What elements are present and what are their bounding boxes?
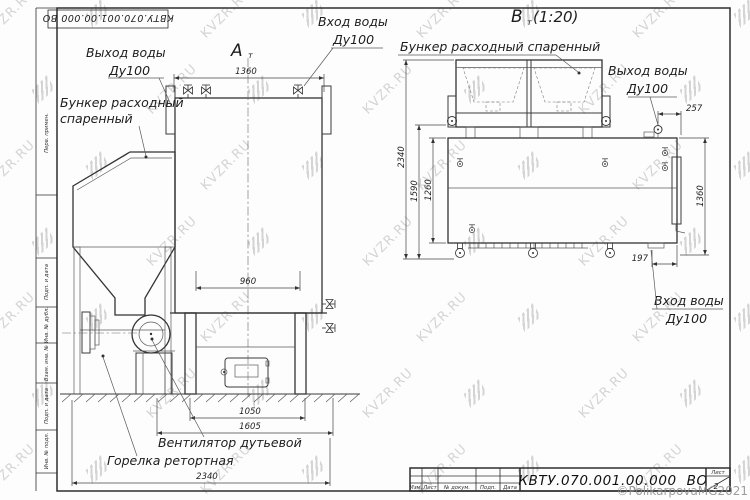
copyright-text: ©PolikarpovaMG2021 (617, 484, 748, 498)
callout-b-bunker: Бункер расходный спаренный (400, 39, 600, 54)
dim-b-197: 197 (632, 254, 649, 264)
callout-burner: Горелка ретортная (107, 453, 234, 468)
boiler-top-body (448, 126, 685, 258)
callout-a-water-in-line2: Ду100 (332, 32, 374, 47)
dim-a-960: 960 (240, 277, 256, 287)
frame-field-inv-podl: Инв. № подл. (44, 433, 50, 470)
view-a-label: А (230, 41, 243, 61)
ground-hatch (60, 394, 360, 402)
tb-col-izm: Изм. (410, 485, 422, 491)
callout-b-water-in-line1: Вход воды (654, 293, 724, 308)
tb-sheet-label: Лист (710, 470, 725, 476)
view-b-callouts: Бункер расходный спаренный Выход воды Ду… (398, 39, 724, 326)
drawing-sheet: KVZR.RUKVZR.RUKVZR.RUKVZR.RUKVZR.RUKVZR.… (0, 0, 750, 500)
callout-a-bunker-line2: спаренный (60, 111, 133, 126)
view-b-label: В (511, 7, 523, 27)
top-left-stamp: КВТУ.070.001.00.000 ВО (42, 10, 173, 28)
dim-a-1360: 1360 (235, 67, 257, 77)
tb-col-list: Лист (422, 485, 437, 491)
callout-b-water-in-line2: Ду100 (665, 311, 707, 326)
callout-fan: Вентилятор дутьевой (158, 435, 302, 450)
frame-field-perv-primen: Перв. примен. (44, 113, 50, 153)
frame-field-podp-data-2: Подп. и дата (44, 388, 50, 424)
view-b: В т (1:20) (397, 7, 724, 326)
valve-icons (184, 85, 336, 333)
callout-a-water-in-line1: Вход воды (318, 14, 388, 29)
dim-b-1360: 1360 (696, 185, 706, 207)
view-a-dimensions: 1360 960 1050 1605 2340 (72, 67, 333, 486)
frame-field-vzam-inv: Взам. инв. № (44, 345, 50, 381)
view-b-scale: (1:20) (533, 8, 578, 26)
callout-a-bunker-line1: Бункер расходный (60, 95, 184, 110)
top-stamp-designation: КВТУ.070.001.00.000 ВО (42, 12, 173, 23)
tb-col-dokum: № докум. (443, 485, 470, 491)
callout-a-water-out-line1: Выход воды (86, 45, 166, 60)
sheet-frame: Перв. примен. Подп. и дата Инв. № дубл. … (36, 8, 730, 491)
view-a: А т (60, 14, 388, 486)
dim-a-1050: 1050 (239, 407, 261, 417)
tb-col-podp: Подп. (480, 485, 496, 491)
callout-b-water-out-line1: Выход воды (608, 63, 688, 78)
dim-a-1605: 1605 (239, 422, 261, 432)
drawing-canvas: Перв. примен. Подп. и дата Инв. № дубл. … (0, 0, 750, 500)
view-a-callouts: Выход воды Ду100 Вход воды Ду100 Бункер … (60, 14, 388, 468)
dim-a-2340: 2340 (196, 472, 218, 482)
boiler-body (166, 58, 331, 398)
view-a-label-sub: т (248, 51, 253, 60)
dim-b-2340: 2340 (397, 146, 407, 168)
frame-field-inv-dubl: Инв. № дубл. (44, 307, 50, 343)
tb-col-data: Дата (502, 485, 517, 491)
dim-b-1260: 1260 (424, 179, 434, 201)
twin-hopper (448, 60, 611, 138)
view-b-label-sub: т (527, 18, 532, 27)
fan (132, 315, 175, 394)
dim-b-257: 257 (686, 104, 703, 114)
callout-b-water-out-line2: Ду100 (626, 81, 668, 96)
dim-b-1590: 1590 (410, 180, 420, 202)
hopper (73, 152, 175, 394)
frame-left-fields: Перв. примен. Подп. и дата Инв. № дубл. … (36, 113, 57, 473)
furnace-door (221, 358, 269, 387)
callout-a-water-out-line2: Ду100 (108, 63, 150, 78)
frame-field-podp-data-1: Подп. и дата (44, 264, 50, 300)
